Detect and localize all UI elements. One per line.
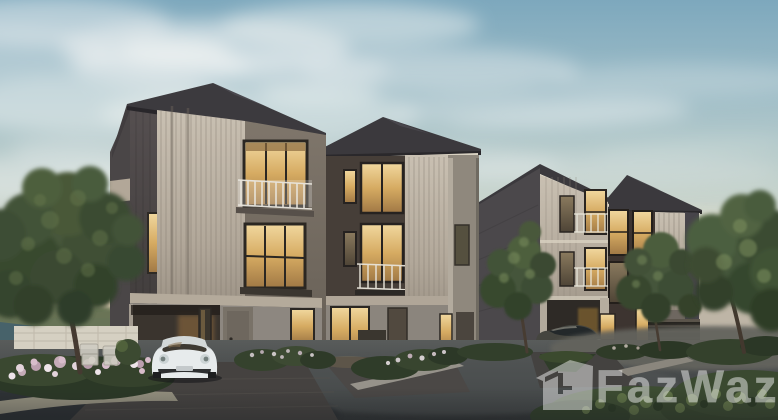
svg-text:FazWaz: FazWaz bbox=[596, 361, 778, 412]
